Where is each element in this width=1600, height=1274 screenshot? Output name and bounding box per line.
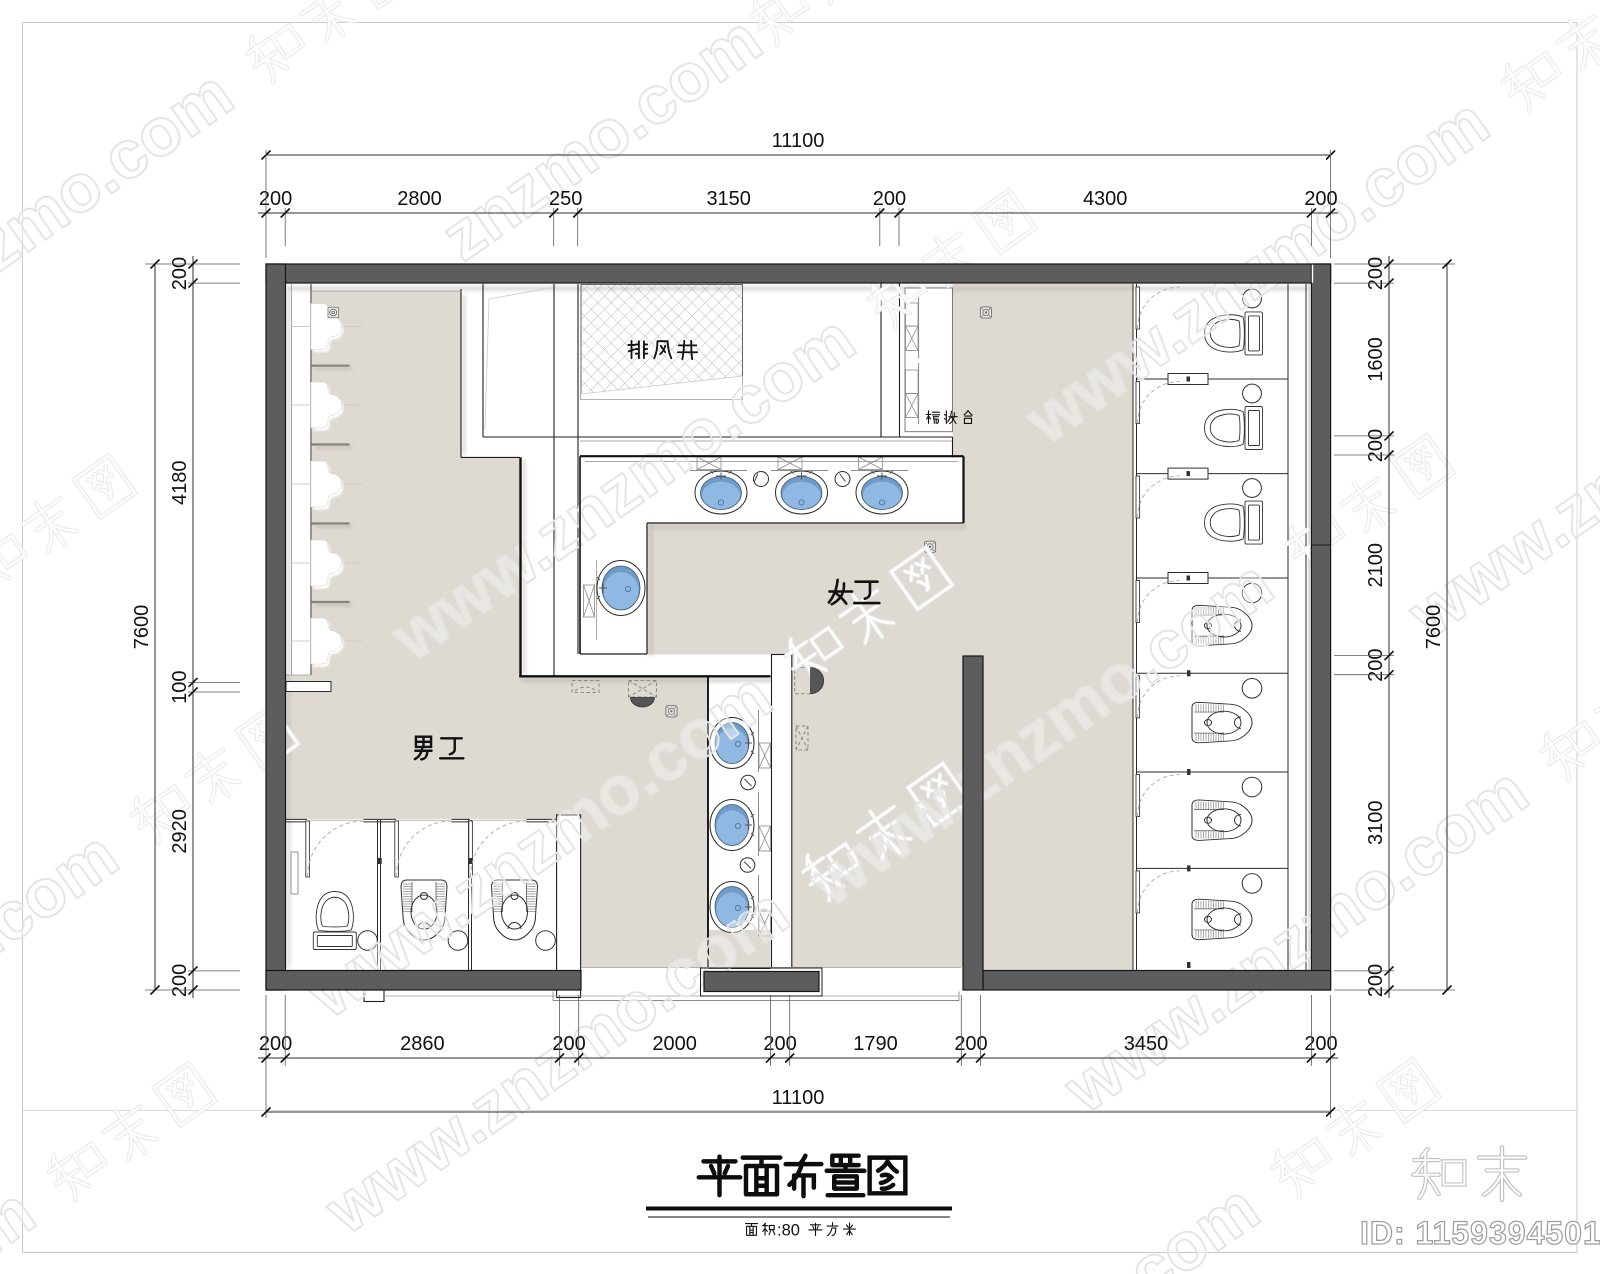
svg-text:200: 200 bbox=[552, 1033, 585, 1055]
svg-text::80: :80 bbox=[777, 1222, 800, 1240]
svg-text:200: 200 bbox=[763, 1033, 796, 1055]
svg-text:ID: 1159394501: ID: 1159394501 bbox=[1360, 1215, 1600, 1251]
svg-text:3100: 3100 bbox=[1365, 801, 1387, 846]
svg-text:200: 200 bbox=[259, 1033, 292, 1055]
svg-text:3150: 3150 bbox=[706, 188, 751, 210]
svg-text:2100: 2100 bbox=[1365, 543, 1387, 588]
svg-text:200: 200 bbox=[873, 188, 906, 210]
svg-text:2800: 2800 bbox=[397, 188, 442, 210]
svg-text:7600: 7600 bbox=[131, 605, 153, 650]
svg-text:4300: 4300 bbox=[1083, 188, 1128, 210]
svg-text:2860: 2860 bbox=[400, 1033, 445, 1055]
svg-text:250: 250 bbox=[549, 188, 582, 210]
svg-text:200: 200 bbox=[1365, 257, 1387, 290]
svg-text:200: 200 bbox=[1304, 1033, 1337, 1055]
svg-text:7600: 7600 bbox=[1423, 605, 1445, 650]
svg-text:1790: 1790 bbox=[853, 1033, 898, 1055]
svg-text:200: 200 bbox=[169, 257, 191, 290]
svg-text:200: 200 bbox=[169, 964, 191, 997]
svg-text:200: 200 bbox=[954, 1033, 987, 1055]
svg-text:3450: 3450 bbox=[1124, 1033, 1169, 1055]
svg-text:1600: 1600 bbox=[1365, 337, 1387, 382]
svg-text:2920: 2920 bbox=[169, 809, 191, 854]
svg-text:200: 200 bbox=[1365, 429, 1387, 462]
svg-text:200: 200 bbox=[1365, 649, 1387, 682]
svg-text:200: 200 bbox=[1365, 964, 1387, 997]
svg-text:11100: 11100 bbox=[772, 1087, 825, 1109]
svg-text:200: 200 bbox=[1304, 188, 1337, 210]
svg-text:100: 100 bbox=[169, 671, 191, 704]
svg-text:11100: 11100 bbox=[772, 130, 825, 152]
svg-text:4180: 4180 bbox=[169, 460, 191, 505]
svg-text:200: 200 bbox=[259, 188, 292, 210]
svg-text:2000: 2000 bbox=[652, 1033, 697, 1055]
